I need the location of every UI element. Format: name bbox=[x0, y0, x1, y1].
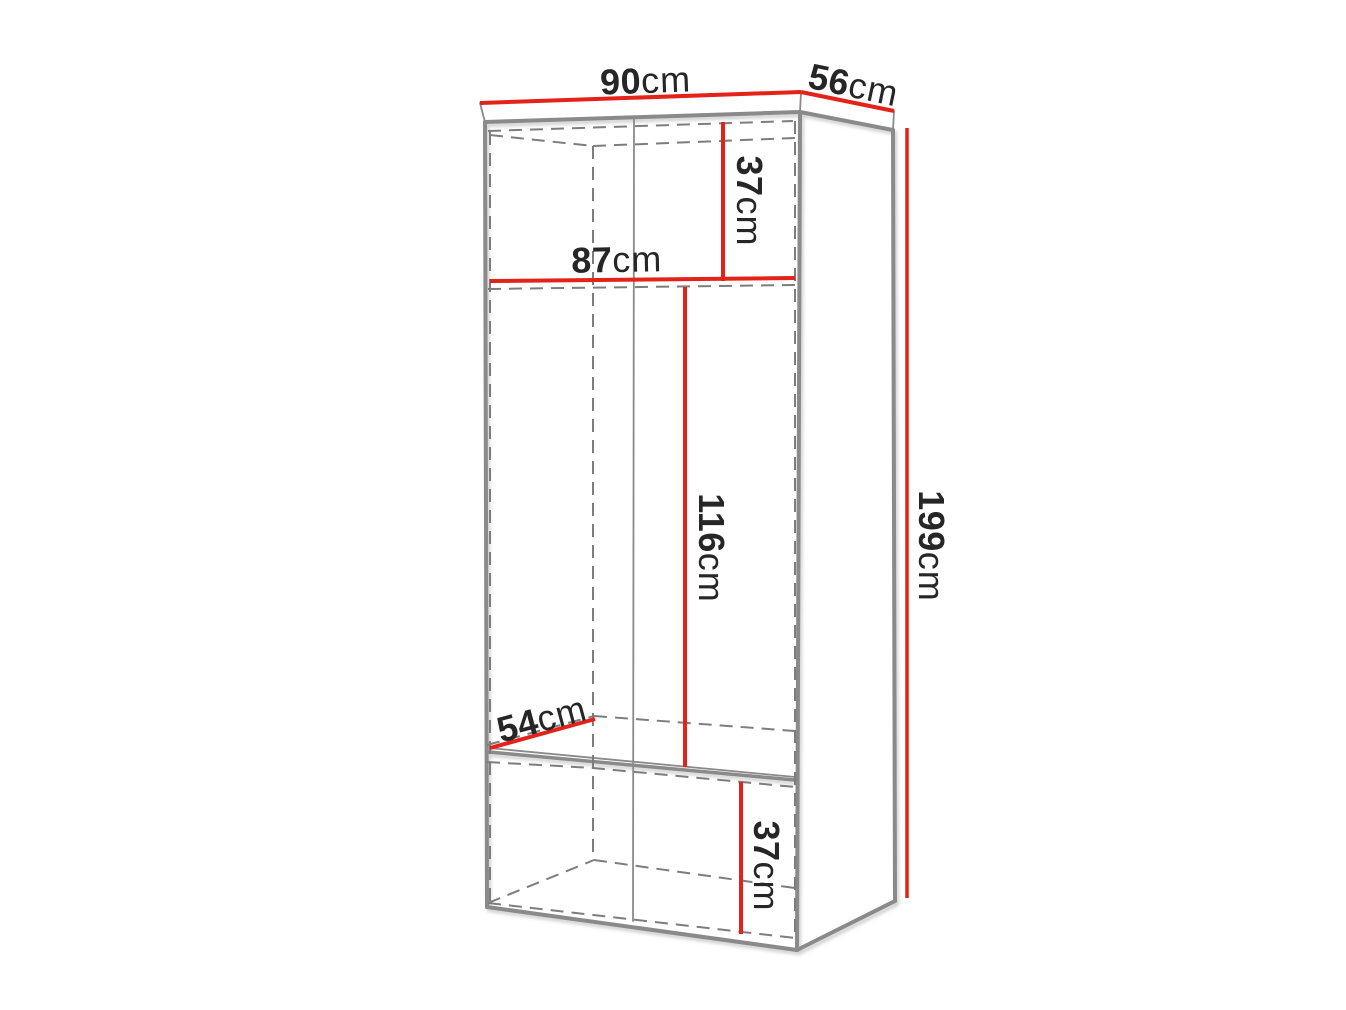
ceiling-back-edge bbox=[593, 138, 795, 146]
wardrobe-dimension-diagram: 90cm 56cm 37cm 87cm 116cm 54cm 37cm 199c… bbox=[0, 0, 1346, 1010]
label-lower-section-37cm: 37cm bbox=[746, 820, 787, 911]
cabinet-outline bbox=[485, 112, 895, 950]
top-panel-left-corner bbox=[480, 103, 485, 122]
bottom-right-edge bbox=[797, 901, 895, 950]
top-front-edge bbox=[485, 112, 800, 122]
label-middle-section-116cm: 116cm bbox=[691, 493, 732, 603]
right-front-edge bbox=[797, 112, 800, 950]
ceiling-front-edge bbox=[488, 121, 793, 131]
label-shelf-depth-54cm: 54cm bbox=[492, 687, 591, 750]
label-total-height-199cm: 199cm bbox=[911, 490, 952, 602]
top-panel-front-corner bbox=[800, 92, 801, 112]
label-top-depth-56cm: 56cm bbox=[805, 55, 903, 114]
center-divider-line bbox=[633, 117, 634, 921]
floor-left-depth-edge bbox=[488, 860, 594, 903]
bottom-shelf-front-edge bbox=[489, 752, 795, 780]
upper-shelf-edge bbox=[488, 285, 795, 289]
shelf-back-edge bbox=[594, 716, 795, 731]
bottom-front-edge bbox=[487, 907, 797, 950]
left-front-edge bbox=[485, 122, 487, 907]
right-back-edge bbox=[893, 130, 895, 901]
top-right-edge bbox=[800, 112, 893, 130]
label-inner-width-87cm: 87cm bbox=[571, 238, 663, 281]
ceiling-left-depth-edge bbox=[490, 135, 593, 146]
label-top-width-90cm: 90cm bbox=[599, 58, 691, 102]
diagram-canvas: 90cm 56cm 37cm 87cm 116cm 54cm 37cm 199c… bbox=[0, 0, 1346, 1010]
label-upper-section-37cm: 37cm bbox=[729, 155, 770, 246]
